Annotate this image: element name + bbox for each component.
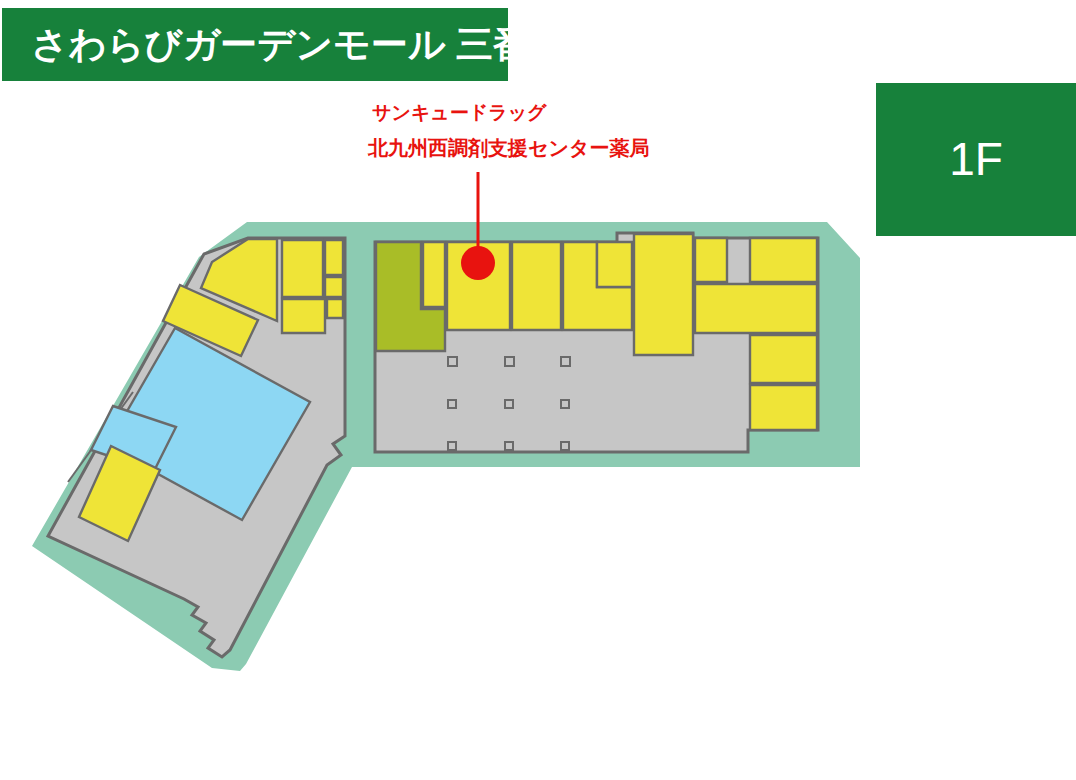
pillar: [448, 400, 456, 408]
room-r9: [750, 335, 817, 383]
pillar: [561, 400, 569, 408]
room-c: [282, 240, 323, 297]
room-e2: [327, 299, 343, 318]
room-e: [325, 277, 343, 297]
floor-label: 1F: [949, 133, 1003, 185]
floor-badge: 1F: [876, 83, 1076, 236]
floor-map-page: さわらびガーデンモール 三番街 1F サンキュードラッグ 北九州西調剤支援センタ…: [0, 0, 1076, 780]
store-location-dot: [461, 246, 495, 280]
pillar: [505, 400, 513, 408]
mall-title-banner: さわらびガーデンモール 三番街: [2, 8, 508, 81]
room-wide: [695, 284, 817, 333]
room-r4: [597, 242, 632, 287]
pillar: [448, 442, 456, 450]
room-f: [282, 299, 325, 333]
store-annotation: サンキュードラッグ 北九州西調剤支援センター薬局: [368, 101, 649, 161]
room-strip: [423, 242, 445, 307]
room-tall: [634, 234, 693, 355]
pillar: [561, 357, 570, 366]
room-r6: [695, 238, 727, 282]
pillar: [505, 357, 514, 366]
pillar: [561, 442, 569, 450]
room-r2: [512, 242, 561, 330]
pillar: [448, 357, 457, 366]
room-d: [325, 240, 343, 275]
room-r7: [750, 238, 817, 282]
room-r10: [750, 385, 817, 430]
pillar: [505, 442, 513, 450]
store-annotation-line2: 北九州西調剤支援センター薬局: [368, 136, 649, 161]
mall-title: さわらびガーデンモール 三番街: [31, 24, 567, 65]
store-annotation-line1: サンキュードラッグ: [368, 101, 649, 125]
